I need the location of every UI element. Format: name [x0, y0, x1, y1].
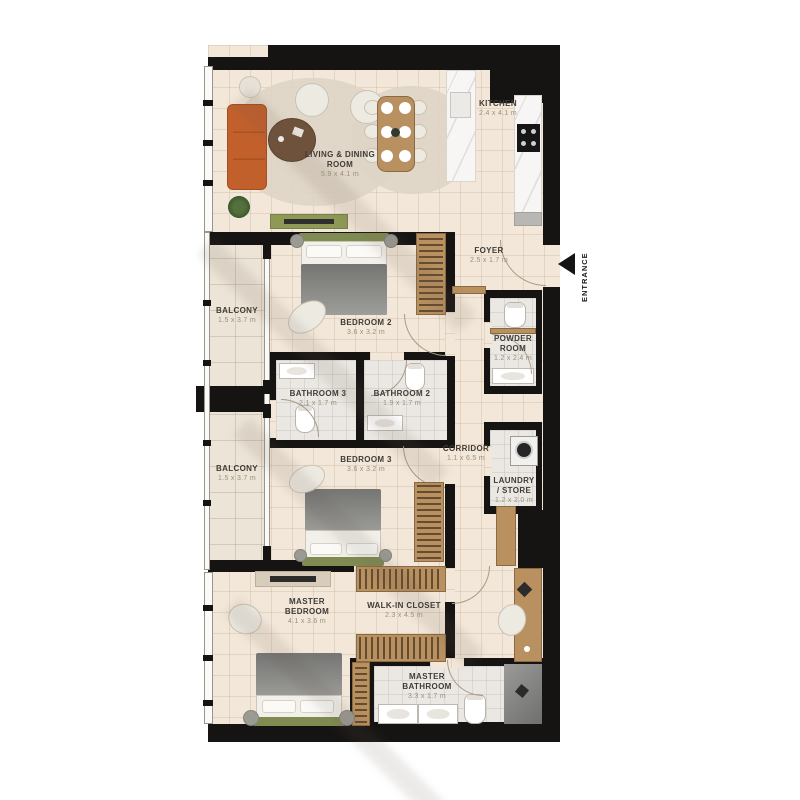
room-label-bedroom-3: BEDROOM 3 3.6 x 3.2 m	[320, 455, 412, 473]
room-label-bathroom-2: BATHROOM 2 1.9 x 1.7 m	[364, 389, 440, 407]
desk-lamp	[524, 646, 530, 652]
corridor-threshold	[452, 286, 486, 294]
room-label-kitchen: KITCHEN 2.4 x 4.1 m	[461, 99, 535, 117]
pillow	[306, 245, 342, 258]
room-label-walk-in-closet: WALK-IN CLOSET 2.3 x 4.5 m	[352, 601, 456, 619]
window-tick	[203, 700, 213, 706]
room-name: BEDROOM 3	[320, 455, 412, 465]
armchair	[295, 83, 329, 117]
plate	[399, 102, 411, 114]
master-tv	[270, 576, 316, 582]
window-tick	[203, 100, 213, 106]
plate	[381, 102, 393, 114]
room-name: BALCONY	[210, 306, 264, 316]
master-toilet	[464, 694, 486, 724]
plate	[399, 126, 411, 138]
bedroom3-wardrobe	[414, 482, 444, 562]
room-name: LAUNDRY / STORE	[491, 476, 537, 496]
floor-plan: LIVING & DINING ROOM 5.9 x 4.1 m KITCHEN…	[0, 0, 800, 800]
cooktop-burner	[531, 141, 536, 146]
plate	[399, 150, 411, 162]
plant-icon	[228, 196, 250, 218]
nightstand	[290, 234, 304, 248]
living-window	[204, 66, 213, 232]
room-label-living-dining: LIVING & DINING ROOM 5.9 x 4.1 m	[295, 150, 385, 178]
room-name: WALK-IN CLOSET	[352, 601, 456, 611]
closet-hangers	[359, 637, 443, 659]
window-tick	[203, 140, 213, 146]
master-vanity-sink	[378, 704, 418, 724]
room-dims: 2.3 x 4.5 m	[352, 612, 456, 619]
powder-toilet	[504, 302, 526, 328]
wardrobe-hangers	[417, 485, 441, 559]
room-label-powder-room: POWDER ROOM 1.2 x 2.4 m	[490, 334, 536, 362]
nightstand	[243, 710, 259, 726]
room-label-foyer: FOYER 2.5 x 1.7 m	[455, 246, 523, 264]
room-name: LIVING & DINING ROOM	[295, 150, 385, 170]
room-dims: 3.6 x 3.2 m	[320, 466, 412, 473]
kitchen-island	[446, 70, 476, 182]
room-name: CORRIDOR	[430, 444, 502, 454]
room-dims: 2.1 x 1.7 m	[280, 400, 356, 407]
room-name: BEDROOM 2	[320, 318, 412, 328]
room-dims: 2.5 x 1.7 m	[455, 257, 523, 264]
tv	[284, 219, 334, 224]
room-dims: 1.9 x 1.7 m	[364, 400, 440, 407]
room-name: POWDER ROOM	[490, 334, 536, 354]
window-tick	[263, 245, 271, 259]
room-dims: 1.2 x 2.0 m	[491, 497, 537, 504]
wall-right-upper	[543, 100, 560, 245]
cooktop-burner	[521, 141, 526, 146]
wall-top-left	[208, 57, 270, 70]
window-tick	[263, 404, 271, 418]
wall-top-main	[268, 45, 498, 70]
master-vanity-sink	[418, 704, 458, 724]
closet-rail	[356, 634, 446, 662]
entrance-arrow-icon	[558, 253, 575, 275]
room-label-bedroom-2: BEDROOM 2 3.6 x 3.2 m	[320, 318, 412, 336]
room-dims: 1.2 x 2.4 m	[490, 355, 536, 362]
window-tick	[203, 605, 213, 611]
nightstand	[294, 549, 307, 562]
window-tick	[203, 655, 213, 661]
room-name: MASTER BATHROOM	[392, 672, 462, 692]
room-label-corridor: CORRIDOR 1.1 x 6.5 m	[430, 444, 502, 462]
room-name: BATHROOM 2	[364, 389, 440, 399]
room-label-master-bathroom: MASTER BATHROOM 3.3 x 1.7 m	[392, 672, 462, 700]
balcony-rail	[204, 232, 210, 570]
room-label-balcony-2: BALCONY 1.5 x 3.7 m	[210, 464, 264, 482]
pillow	[310, 543, 342, 555]
kitchen-appliance	[514, 212, 542, 226]
bathroom2-toilet	[405, 363, 425, 391]
room-dims: 1.5 x 3.7 m	[210, 317, 264, 324]
entrance-label: ENTRANCE	[580, 236, 589, 302]
room-label-bathroom-3: BATHROOM 3 2.1 x 1.7 m	[280, 389, 356, 407]
room-dims: 3.6 x 3.2 m	[320, 329, 412, 336]
window-tick	[263, 546, 271, 560]
room-name: MASTER BEDROOM	[272, 597, 342, 617]
room-label-master-bedroom: MASTER BEDROOM 4.1 x 3.6 m	[272, 597, 342, 625]
washing-machine-drum	[515, 441, 533, 459]
room-dims: 4.1 x 3.6 m	[272, 618, 342, 625]
room-dims: 3.3 x 1.7 m	[392, 693, 462, 700]
cooktop-burner	[521, 129, 526, 134]
pillow	[262, 700, 296, 713]
window-tick	[203, 500, 211, 506]
wall-block-below-laundry	[518, 510, 560, 568]
storage-door	[496, 506, 516, 566]
cooktop	[517, 124, 540, 152]
room-label-laundry-store: LAUNDRY / STORE 1.2 x 2.0 m	[491, 476, 537, 504]
room-name: KITCHEN	[461, 99, 535, 109]
window-tick	[263, 380, 271, 394]
room-label-balcony-1: BALCONY 1.5 x 3.7 m	[210, 306, 264, 324]
room-name: BATHROOM 3	[280, 389, 356, 399]
room-dims: 2.4 x 4.1 m	[461, 110, 535, 117]
room-dims: 1.1 x 6.5 m	[430, 455, 502, 462]
room-name: FOYER	[455, 246, 523, 256]
room-dims: 1.5 x 3.7 m	[210, 475, 264, 482]
window-tick	[203, 440, 211, 446]
room-dims: 5.9 x 4.1 m	[295, 171, 385, 178]
wall-bedroom3-corridor	[445, 484, 455, 568]
cooktop-burner	[531, 129, 536, 134]
centerpiece	[391, 128, 400, 137]
window-tick	[203, 180, 213, 186]
room-name: BALCONY	[210, 464, 264, 474]
bathroom2-door-gap	[370, 352, 404, 360]
window-tick	[203, 360, 211, 366]
